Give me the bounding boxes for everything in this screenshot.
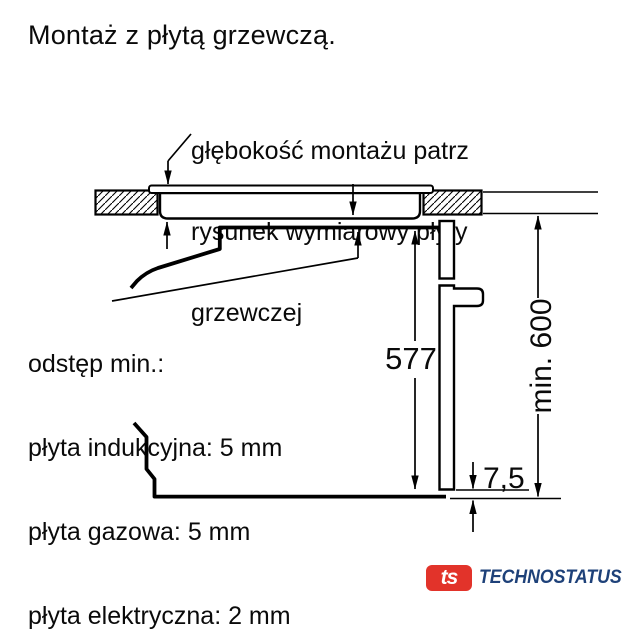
oven-door-upper: [440, 221, 455, 279]
dim-577: 577: [385, 231, 437, 489]
installation-diagram-page: Montaż z płytą grzewczą. głębokość monta…: [0, 0, 623, 629]
annotation-leader-line: [168, 134, 191, 161]
ts-logo-icon: ts: [426, 565, 472, 591]
technostatus-logo: ts TECHNOSTATUS: [426, 565, 623, 591]
dim-7-5: 7,5: [473, 462, 525, 532]
technical-drawing: 577 min. 600 7,5: [0, 0, 623, 629]
gap-note-leader-line: [112, 258, 358, 301]
hob-top-plate: [149, 186, 433, 194]
oven-door-lower: [440, 286, 484, 490]
worktop-left-block: [96, 191, 158, 215]
logo-name: TECHNOSTATUS: [479, 567, 622, 589]
oven-bottom-outline: [134, 423, 446, 497]
dim-75-label: 7,5: [483, 462, 525, 495]
worktop-right-block: [424, 191, 482, 215]
worktop-extension-lines: [483, 192, 598, 214]
hob-section: [149, 186, 433, 219]
dim-min-600: min. 600: [525, 216, 558, 497]
oven-top-outline: [131, 228, 441, 289]
dim-600-label: min. 600: [525, 298, 558, 413]
dim-577-label: 577: [385, 341, 437, 376]
hob-tub: [160, 193, 420, 219]
annotation-leader: [168, 134, 191, 184]
